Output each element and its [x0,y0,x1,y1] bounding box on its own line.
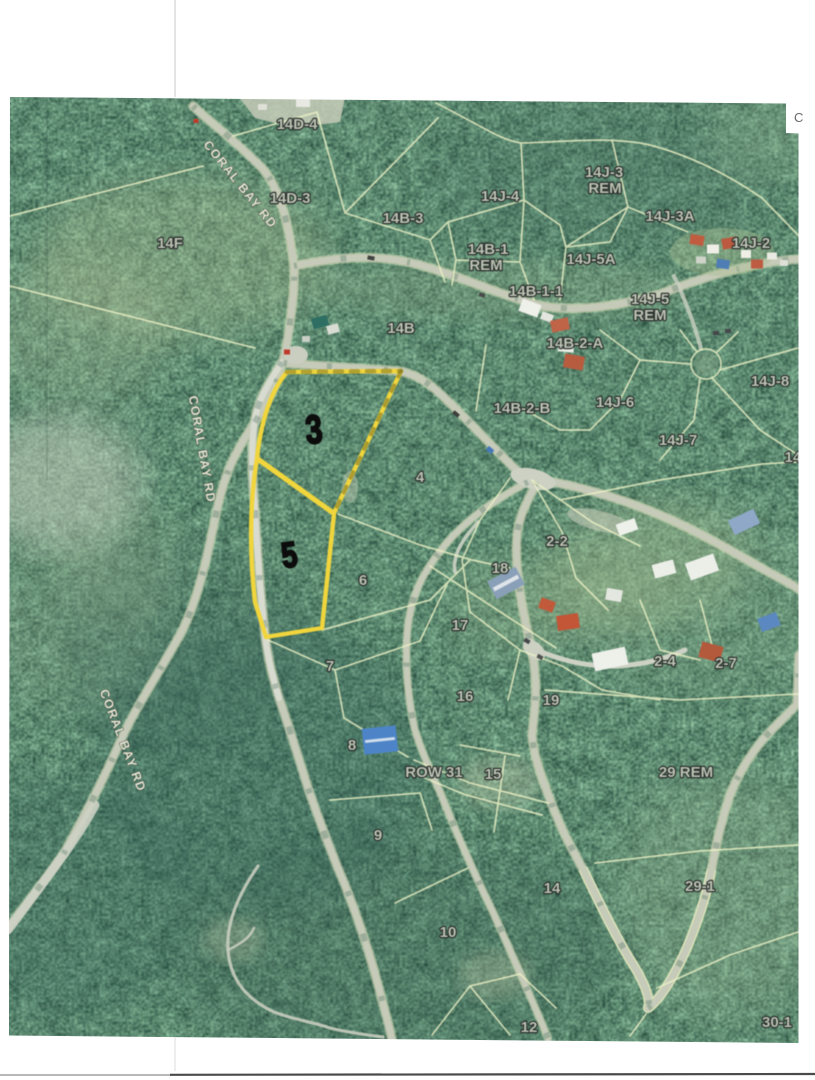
svg-text:14B-2-B: 14B-2-B [494,400,551,417]
svg-text:14D-4: 14D-4 [277,116,319,133]
svg-text:REM: REM [633,307,666,324]
svg-text:30-1: 30-1 [762,1014,792,1031]
svg-text:2-4: 2-4 [654,653,676,670]
svg-text:2-2: 2-2 [546,533,568,550]
svg-text:REM: REM [588,180,621,197]
svg-text:ROW 31: ROW 31 [405,764,463,781]
svg-text:7: 7 [326,658,334,675]
svg-text:10: 10 [440,924,457,941]
svg-text:14B: 14B [387,320,415,337]
svg-text:14J-3: 14J-3 [585,164,623,181]
svg-text:14J: 14J [784,449,809,466]
svg-text:14B-1-1: 14B-1-1 [509,283,563,300]
svg-text:14J-2: 14J-2 [732,235,770,252]
svg-text:14F: 14F [157,235,183,252]
svg-text:4: 4 [416,469,425,486]
svg-text:12: 12 [521,1019,538,1036]
svg-text:8: 8 [348,737,356,754]
svg-text:14J-4: 14J-4 [481,188,520,205]
svg-text:19: 19 [543,692,560,709]
svg-text:29-1: 29-1 [685,878,715,895]
svg-text:14J-5: 14J-5 [631,291,669,308]
svg-text:C: C [794,110,803,125]
svg-text:15: 15 [485,766,502,783]
svg-text:14: 14 [544,880,561,897]
svg-text:17: 17 [452,617,469,634]
svg-text:18: 18 [492,560,509,577]
svg-text:REM: REM [469,257,502,274]
svg-text:14J-6: 14J-6 [596,394,634,411]
svg-text:14B-3: 14B-3 [383,210,424,227]
svg-text:6: 6 [359,572,367,589]
svg-text:29 REM: 29 REM [659,764,713,781]
svg-text:16: 16 [457,688,474,705]
svg-text:14J-8: 14J-8 [751,373,789,390]
svg-text:9: 9 [374,827,382,844]
svg-text:14J-3A: 14J-3A [645,208,694,225]
svg-text:14B-2-A: 14B-2-A [547,335,604,352]
svg-text:2-7: 2-7 [715,655,737,672]
svg-text:14B-1: 14B-1 [468,241,509,258]
svg-text:14J-7: 14J-7 [659,432,697,449]
svg-text:14J-5A: 14J-5A [566,251,615,268]
svg-text:14D-3: 14D-3 [270,190,311,207]
